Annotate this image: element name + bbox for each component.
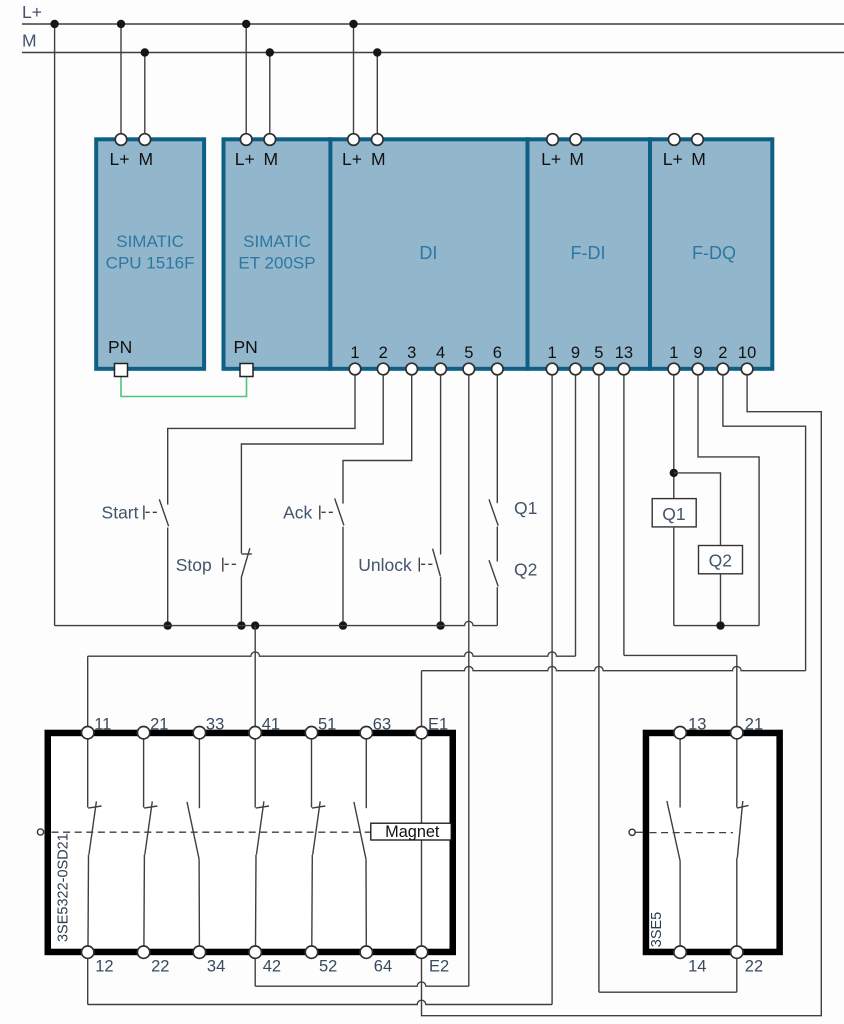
svg-text:34: 34 — [207, 957, 225, 975]
svg-text:1: 1 — [669, 344, 678, 362]
svg-text:L+: L+ — [110, 149, 130, 169]
svg-text:2: 2 — [379, 344, 388, 362]
svg-text:DI: DI — [419, 243, 437, 263]
svg-text:Q2: Q2 — [514, 560, 537, 580]
svg-text:Start: Start — [102, 503, 139, 523]
svg-text:11: 11 — [94, 715, 111, 733]
svg-text:L+: L+ — [342, 149, 362, 169]
svg-text:9: 9 — [693, 344, 702, 362]
svg-text:E1: E1 — [428, 715, 448, 733]
svg-text:3SE5: 3SE5 — [649, 912, 665, 947]
svg-text:M: M — [22, 31, 37, 51]
svg-text:F-DQ: F-DQ — [692, 243, 736, 263]
svg-text:42: 42 — [263, 957, 281, 975]
svg-text:SIMATIC: SIMATIC — [243, 232, 311, 251]
svg-text:M: M — [264, 149, 279, 169]
svg-text:M: M — [371, 149, 386, 169]
svg-text:M: M — [139, 149, 154, 169]
svg-text:L+: L+ — [22, 2, 42, 22]
svg-text:SIMATIC: SIMATIC — [116, 232, 184, 251]
svg-text:ET 200SP: ET 200SP — [238, 253, 315, 272]
svg-text:Q1: Q1 — [514, 498, 537, 518]
svg-text:22: 22 — [151, 957, 169, 975]
svg-text:L+: L+ — [235, 149, 255, 169]
svg-text:10: 10 — [738, 344, 756, 362]
svg-text:5: 5 — [594, 344, 603, 362]
svg-text:33: 33 — [206, 715, 224, 733]
svg-text:Ack: Ack — [283, 503, 312, 523]
svg-text:3SE5322-0SD21: 3SE5322-0SD21 — [55, 833, 71, 942]
svg-text:Q1: Q1 — [662, 504, 685, 524]
svg-text:12: 12 — [95, 957, 113, 975]
svg-text:F-DI: F-DI — [571, 243, 606, 263]
svg-text:1: 1 — [548, 344, 557, 362]
svg-text:Q2: Q2 — [709, 551, 732, 571]
svg-text:21: 21 — [745, 715, 763, 733]
svg-text:3: 3 — [407, 344, 416, 362]
svg-text:E2: E2 — [429, 957, 449, 975]
svg-text:63: 63 — [373, 715, 391, 733]
svg-text:L+: L+ — [541, 149, 561, 169]
svg-text:L+: L+ — [663, 149, 683, 169]
svg-text:Magnet: Magnet — [385, 823, 440, 841]
svg-text:2: 2 — [718, 344, 727, 362]
svg-text:13: 13 — [615, 344, 633, 362]
svg-text:1: 1 — [350, 344, 359, 362]
svg-text:13: 13 — [688, 715, 706, 733]
svg-text:21: 21 — [150, 715, 168, 733]
svg-text:52: 52 — [319, 957, 337, 975]
svg-text:51: 51 — [318, 715, 336, 733]
svg-text:4: 4 — [436, 344, 445, 362]
svg-text:PN: PN — [108, 337, 132, 357]
svg-text:5: 5 — [464, 344, 473, 362]
svg-text:9: 9 — [571, 344, 580, 362]
svg-text:22: 22 — [745, 957, 763, 975]
svg-text:41: 41 — [262, 715, 280, 733]
svg-text:6: 6 — [493, 344, 502, 362]
svg-text:14: 14 — [688, 957, 706, 975]
svg-text:M: M — [569, 149, 584, 169]
svg-text:CPU 1516F: CPU 1516F — [106, 253, 195, 272]
svg-text:PN: PN — [234, 337, 258, 357]
svg-text:Stop: Stop — [176, 555, 212, 575]
svg-text:M: M — [691, 149, 706, 169]
svg-text:Unlock: Unlock — [358, 555, 412, 575]
svg-text:64: 64 — [374, 957, 392, 975]
